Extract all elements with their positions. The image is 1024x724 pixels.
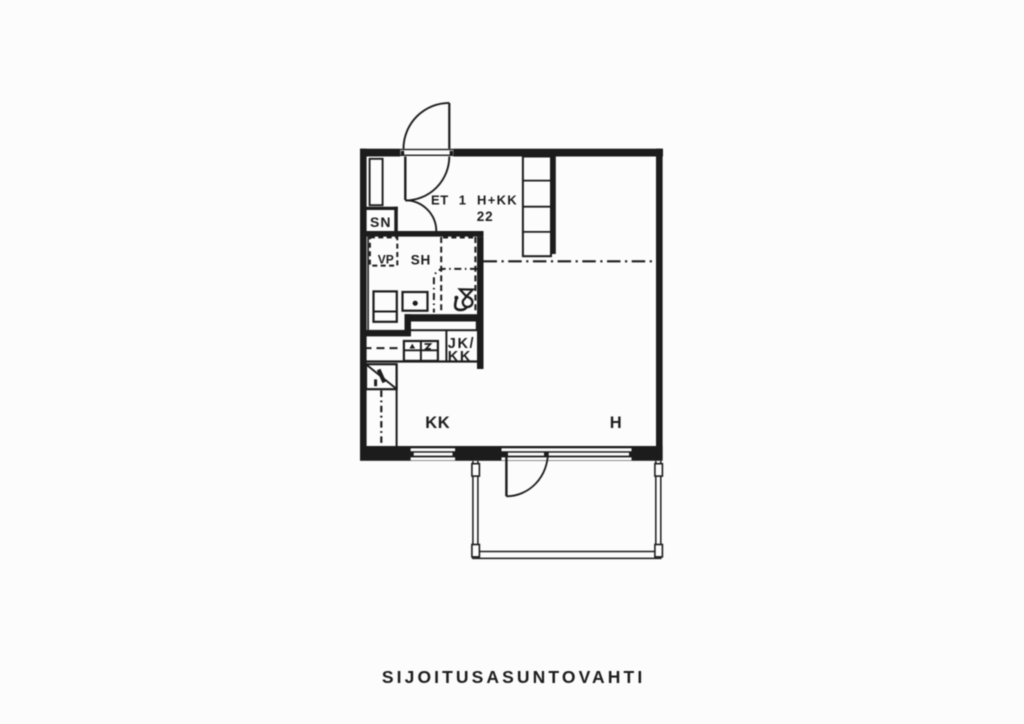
svg-text:H+KK: H+KK	[477, 193, 518, 208]
svg-text:22: 22	[477, 209, 494, 224]
svg-text:SIJOITUSASUNTOVAHTI: SIJOITUSASUNTOVAHTI	[382, 667, 645, 687]
svg-text:VP: VP	[378, 253, 394, 267]
svg-text:ET: ET	[431, 193, 449, 208]
svg-text:SH: SH	[411, 253, 431, 268]
svg-text:1: 1	[459, 193, 466, 208]
svg-text:SN: SN	[370, 214, 391, 230]
svg-text:H: H	[610, 414, 622, 432]
svg-text:KK: KK	[425, 414, 450, 432]
